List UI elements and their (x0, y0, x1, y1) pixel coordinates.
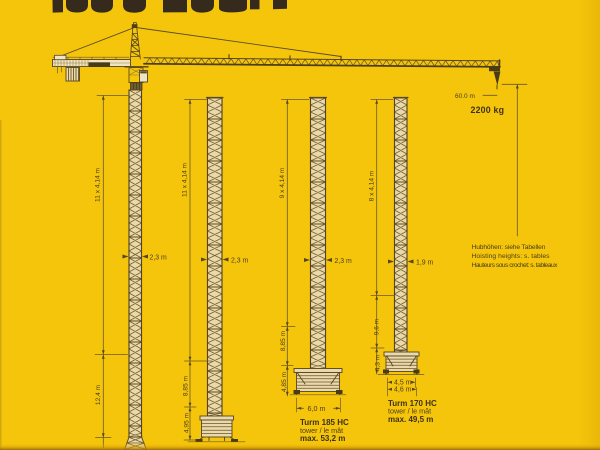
svg-text:8,85 m: 8,85 m (183, 375, 190, 396)
svg-text:12,4 m: 12,4 m (95, 384, 102, 405)
svg-text:4,6 m: 4,6 m (394, 387, 412, 394)
svg-text:Hauteurs sous crochet: s. tabl: Hauteurs sous crochet: s. tableaux (472, 262, 559, 269)
svg-text:60.0 m: 60.0 m (455, 93, 475, 100)
svg-text:1,9 m: 1,9 m (416, 260, 433, 267)
svg-text:9,6 m: 9,6 m (374, 318, 381, 335)
svg-text:4,5 m: 4,5 m (394, 380, 412, 387)
svg-text:9 x 4,14 m: 9 x 4,14 m (279, 167, 286, 198)
svg-text:4,3 m: 4,3 m (375, 354, 382, 371)
svg-text:max. 53,2 m: max. 53,2 m (300, 434, 345, 443)
svg-text:8,85 m: 8,85 m (280, 330, 287, 351)
svg-text:2,3 m: 2,3 m (150, 255, 167, 262)
svg-text:2200 kg: 2200 kg (471, 105, 505, 115)
svg-text:Hoisting heights: s. tables: Hoisting heights: s. tables (472, 253, 551, 260)
svg-text:6,0 m: 6,0 m (308, 404, 326, 413)
svg-text:8 x 4,14 m: 8 x 4,14 m (369, 170, 376, 201)
svg-text:Hubhöhen: siehe Tabellen: Hubhöhen: siehe Tabellen (472, 244, 546, 251)
svg-text:4,85 m: 4,85 m (281, 371, 288, 392)
svg-text:max. 49,5 m: max. 49,5 m (388, 415, 433, 424)
svg-text:11 x 4,14 m: 11 x 4,14 m (182, 163, 189, 197)
svg-text:2,3 m: 2,3 m (335, 258, 352, 265)
svg-text:11 x 4,14 m: 11 x 4,14 m (95, 168, 102, 202)
svg-text:2,3 m: 2,3 m (231, 258, 248, 265)
svg-text:4,95 m: 4,95 m (184, 412, 191, 433)
